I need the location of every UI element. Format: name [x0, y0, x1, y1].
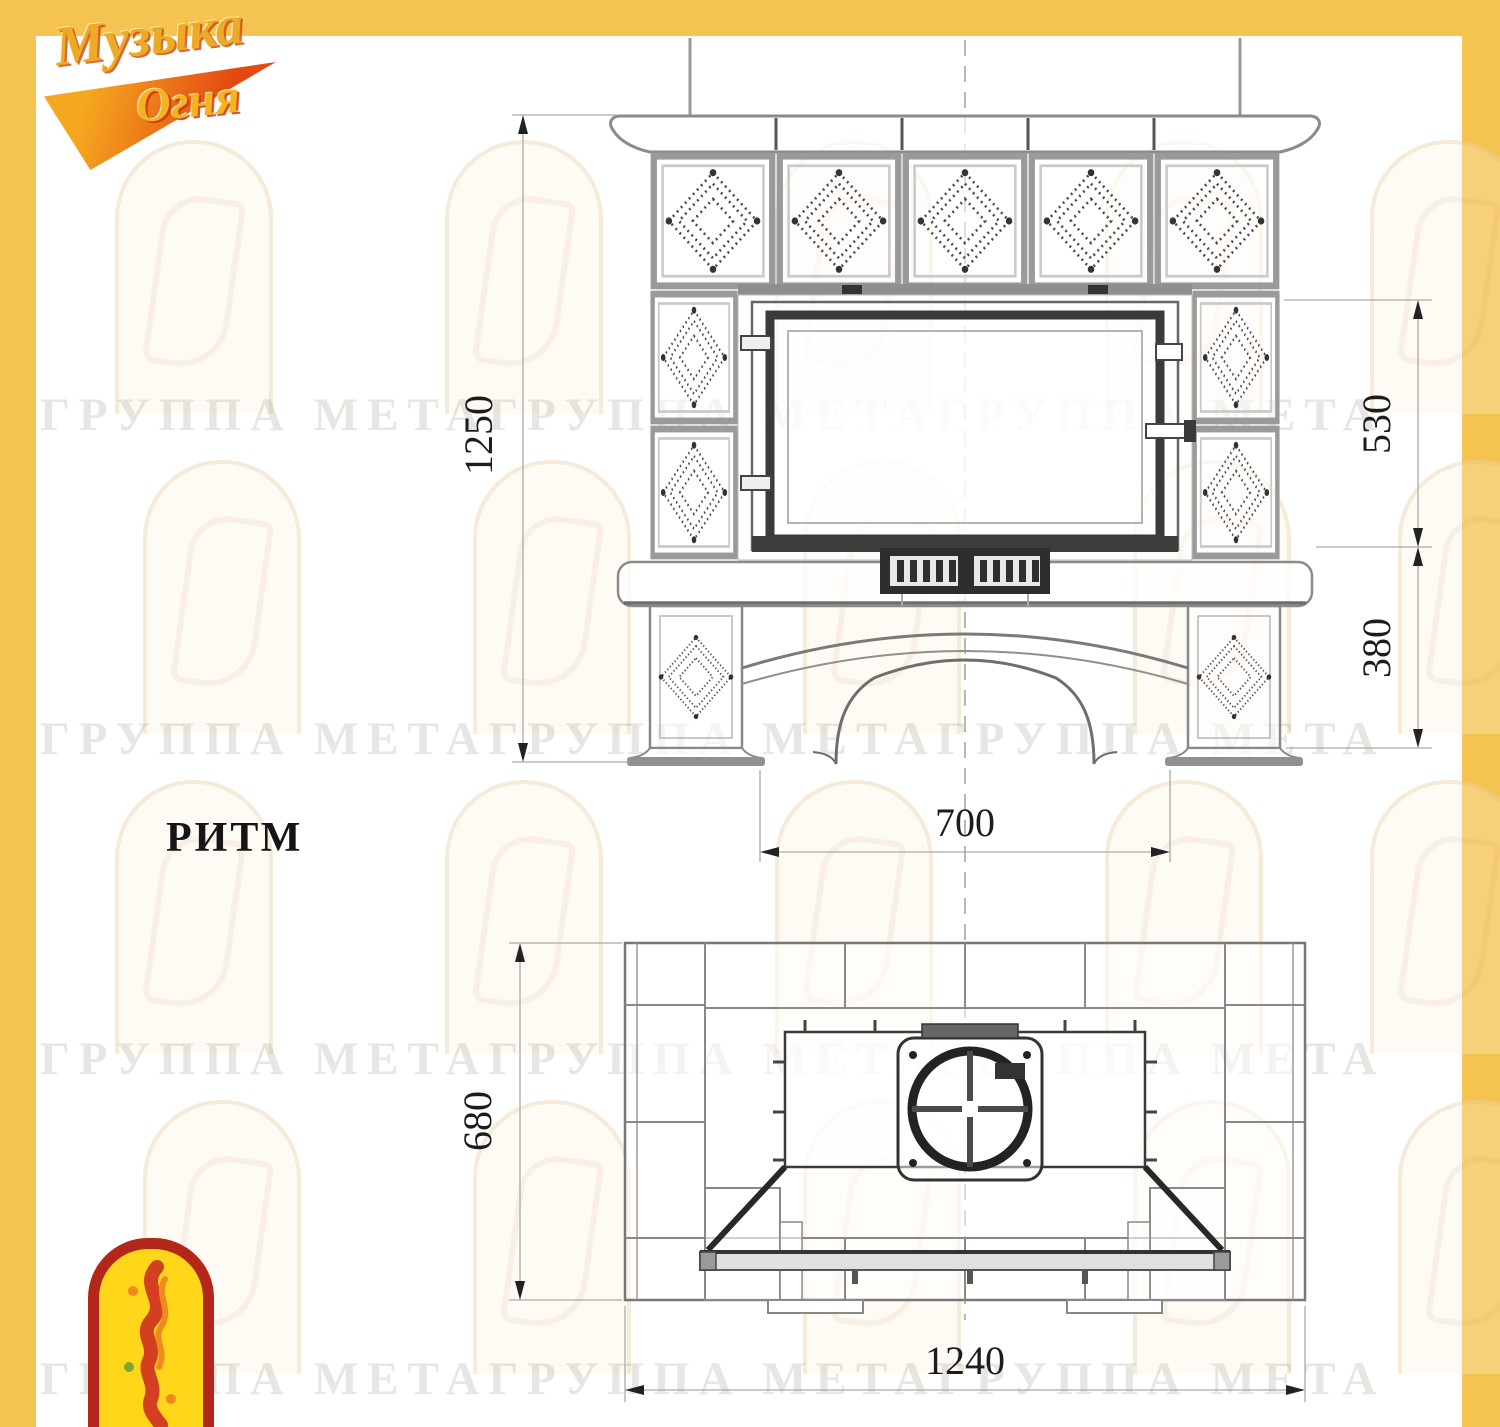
left-leg: [627, 606, 765, 766]
technical-drawing: 1250 530 380 700: [0, 0, 1500, 1427]
door-handle: [1156, 344, 1182, 360]
vent-grille: [880, 548, 1050, 594]
dim-plan-width: 1240: [925, 1338, 1005, 1383]
firebox-door: [738, 295, 1196, 560]
dim-front-overall-height: 1250: [456, 395, 501, 475]
emblem-flame-figure-icon: [99, 1249, 203, 1427]
dim-plan-depth: 680: [455, 1091, 500, 1151]
dim-front-opening-width: 700: [935, 800, 995, 845]
door-latch: [1146, 424, 1188, 438]
dim-front-firebox-height: 530: [1354, 394, 1399, 454]
right-leg: [1165, 606, 1303, 766]
door-hinge: [741, 336, 771, 350]
dim-front-base-height: 380: [1354, 618, 1399, 678]
brand-emblem: [88, 1238, 214, 1427]
page-root: ГРУППА МЕТАГРУППА МЕТАГРУППА МЕТА ГРУППА…: [0, 0, 1500, 1427]
door-hinge: [741, 476, 771, 490]
plan-view: [625, 943, 1305, 1313]
